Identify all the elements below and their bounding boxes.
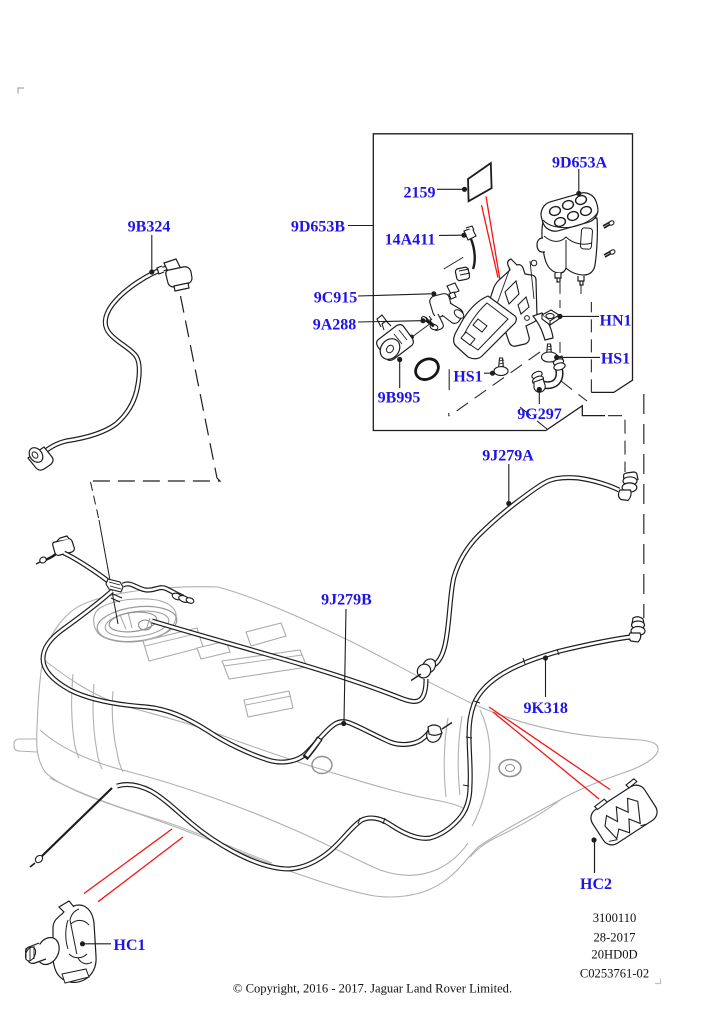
svg-text:9B995: 9B995 bbox=[378, 390, 421, 407]
svg-text:© Copyright, 2016 - 2017. Jagu: © Copyright, 2016 - 2017. Jaguar Land Ro… bbox=[233, 982, 512, 996]
svg-text:9G297: 9G297 bbox=[517, 406, 561, 423]
svg-text:3100110: 3100110 bbox=[593, 911, 637, 925]
svg-text:HC1: HC1 bbox=[114, 937, 146, 954]
svg-text:14A411: 14A411 bbox=[385, 232, 436, 249]
svg-text:9K318: 9K318 bbox=[523, 700, 567, 717]
svg-text:28-2017: 28-2017 bbox=[594, 931, 636, 945]
svg-text:9J279A: 9J279A bbox=[482, 448, 534, 465]
svg-text:C0253761-02: C0253761-02 bbox=[580, 967, 649, 981]
svg-text:9A288: 9A288 bbox=[313, 317, 357, 334]
svg-text:2159: 2159 bbox=[404, 185, 436, 202]
svg-text:HS1: HS1 bbox=[601, 351, 630, 368]
svg-text:9C915: 9C915 bbox=[314, 290, 358, 307]
svg-text:9D653B: 9D653B bbox=[291, 219, 346, 236]
svg-text:HS1: HS1 bbox=[453, 368, 482, 385]
svg-text:9D653A: 9D653A bbox=[552, 155, 608, 172]
svg-text:20HD0D: 20HD0D bbox=[591, 948, 637, 962]
svg-text:HN1: HN1 bbox=[600, 312, 632, 329]
svg-text:9J279B: 9J279B bbox=[321, 592, 372, 609]
svg-text:9B324: 9B324 bbox=[128, 219, 171, 236]
svg-text:HC2: HC2 bbox=[580, 876, 612, 893]
